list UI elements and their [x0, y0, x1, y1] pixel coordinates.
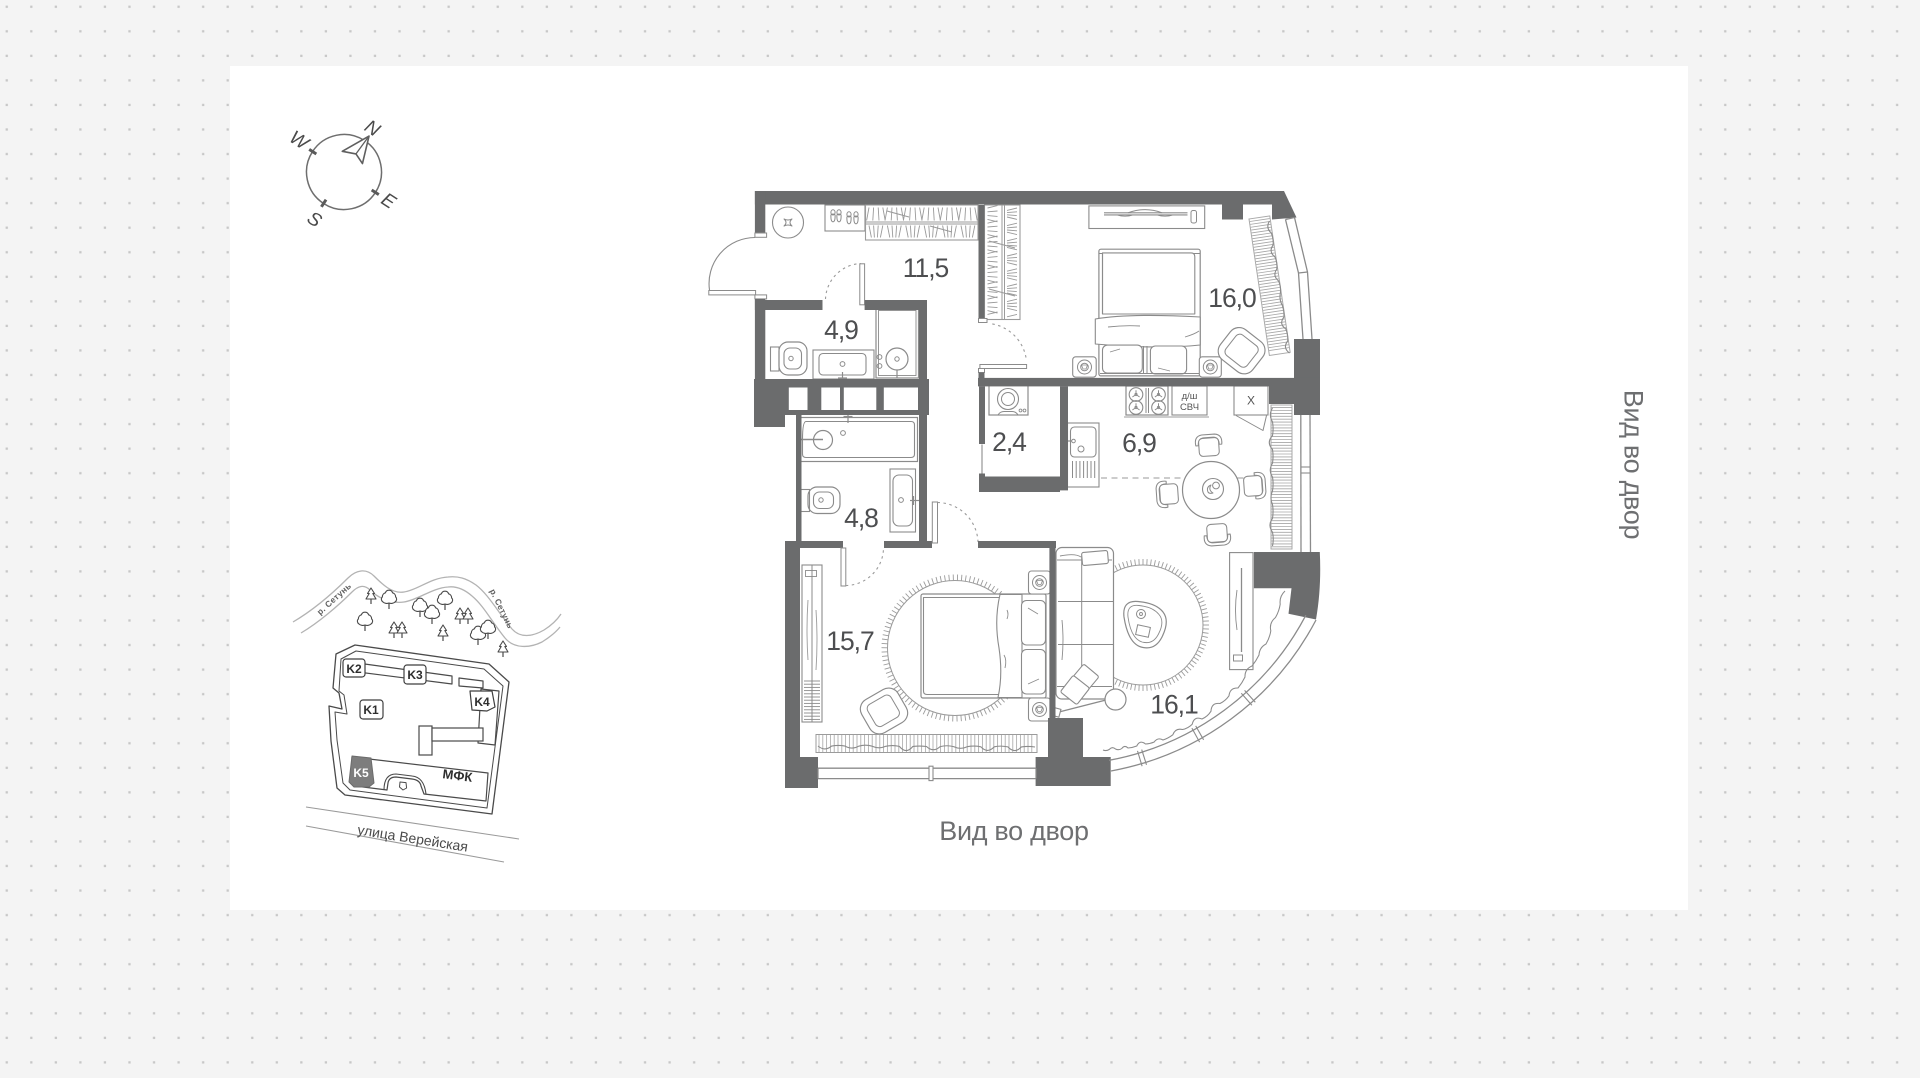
svg-text:д/ш: д/ш	[1182, 391, 1198, 402]
svg-text:K2: K2	[346, 662, 362, 676]
svg-text:K3: K3	[407, 668, 423, 682]
svg-text:16,1: 16,1	[1150, 690, 1198, 720]
svg-text:Вид во двор: Вид во двор	[939, 816, 1088, 846]
svg-text:16,0: 16,0	[1208, 283, 1256, 313]
svg-text:2,4: 2,4	[992, 427, 1026, 457]
svg-text:K5: K5	[353, 766, 369, 780]
svg-text:4,9: 4,9	[824, 315, 858, 345]
svg-text:X: X	[1247, 394, 1255, 408]
svg-text:K1: K1	[363, 703, 379, 717]
svg-text:СВЧ: СВЧ	[1180, 402, 1199, 413]
svg-text:Вид во двор: Вид во двор	[1619, 390, 1649, 539]
svg-text:4,8: 4,8	[844, 503, 878, 533]
svg-text:15,7: 15,7	[826, 626, 874, 656]
svg-text:11,5: 11,5	[903, 253, 949, 283]
svg-text:6,9: 6,9	[1122, 428, 1156, 458]
svg-text:K4: K4	[474, 695, 490, 709]
